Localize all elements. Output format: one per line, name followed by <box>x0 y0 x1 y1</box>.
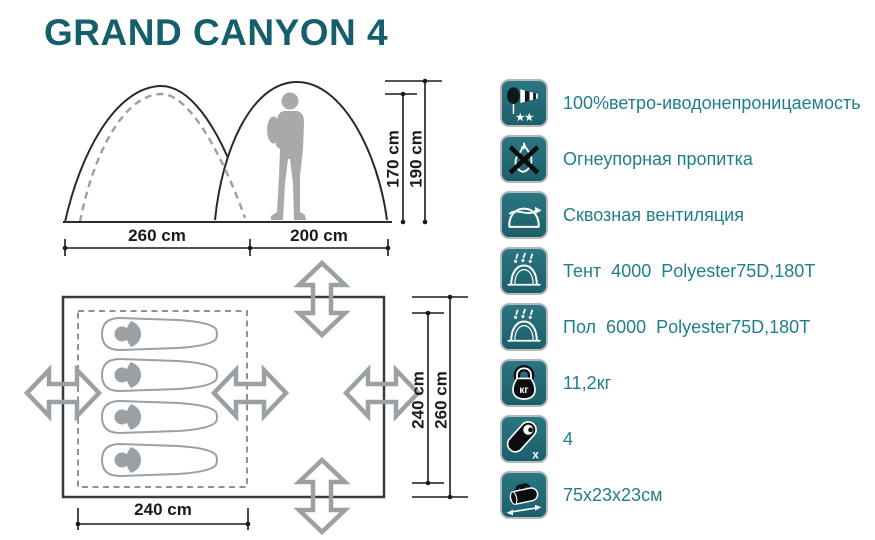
floor-waterproof-icon <box>502 305 546 349</box>
vent-arrow-icon <box>299 263 345 335</box>
dim-dot <box>401 220 406 225</box>
sleeping-bag <box>102 318 217 350</box>
tent-waterproof-icon <box>502 249 546 293</box>
tent-floorplan-diagram: 240 cm 260 cm 240 cm <box>18 254 488 540</box>
feature-icon-badge <box>500 191 548 239</box>
dim-dot <box>386 246 391 251</box>
sleeping-bag <box>102 401 217 433</box>
dim-dot <box>63 246 68 251</box>
feature-label: Пол 6000 Polyester75D,180T <box>563 317 810 338</box>
feature-label: Тент 4000 Polyester75D,180T <box>563 261 815 282</box>
dim-dot <box>426 481 431 486</box>
feature-list: ★★ 100%ветро-иводонепроницаемость Огнеуп… <box>500 79 861 519</box>
dim-dot <box>426 311 431 316</box>
dim-dot <box>448 295 453 300</box>
feature-row-ventilation: Сквозная вентиляция <box>500 191 861 239</box>
dim-dot <box>448 495 453 500</box>
feature-icon-badge <box>500 135 548 183</box>
feature-label: 100%ветро-иводонепроницаемость <box>563 93 861 114</box>
size-arrow <box>507 505 542 515</box>
feature-row-weight: кг 11,2кг <box>500 359 861 407</box>
capacity-icon: x <box>502 417 546 461</box>
svg-text:кг: кг <box>519 385 528 396</box>
packed-size-icon <box>502 473 546 517</box>
dim-dot <box>76 522 81 527</box>
ventilation-icon <box>502 193 546 237</box>
feature-icon-badge <box>500 303 548 351</box>
feature-row-windproof: ★★ 100%ветро-иводонепроницаемость <box>500 79 861 127</box>
feature-label: 75х23х23см <box>563 485 662 506</box>
svg-text:x: x <box>532 447 539 461</box>
dim-dot <box>401 92 406 97</box>
feature-row-capacity: x 4 <box>500 415 861 463</box>
feature-icon-badge <box>500 471 548 519</box>
sleeping-bag <box>102 359 217 391</box>
page-title: GRAND CANYON 4 <box>44 12 388 54</box>
elevation-height-outer-label: 190 cm <box>406 130 425 188</box>
svg-text:★★: ★★ <box>516 112 534 123</box>
elevation-width-left-label: 260 cm <box>128 226 186 245</box>
elevation-height-inner-label: 170 cm <box>383 130 402 188</box>
product-spec-sheet: GRAND CANYON 4 260 cm 200 cm <box>0 0 875 540</box>
floorplan-inner-depth-label: 240 cm <box>408 371 427 429</box>
weight-icon: кг <box>502 361 546 405</box>
dim-dot <box>246 522 251 527</box>
feature-icon-badge <box>500 247 548 295</box>
elevation-width-right-label: 200 cm <box>290 226 348 245</box>
feature-row-fly-rating: Тент 4000 Polyester75D,180T <box>500 247 861 295</box>
feature-icon-badge: x <box>500 415 548 463</box>
feature-row-fireproof: Огнеупорная пропитка <box>500 135 861 183</box>
door-arrow-icon <box>214 370 286 416</box>
feature-label: Огнеупорная пропитка <box>563 149 753 170</box>
feature-row-floor-rating: Пол 6000 Polyester75D,180T <box>500 303 861 351</box>
no-fire-icon <box>502 137 546 181</box>
tent-elevation-diagram: 260 cm 200 cm 170 cm 190 cm <box>40 64 452 262</box>
dim-dot <box>423 220 428 225</box>
feature-icon-badge: ★★ <box>500 79 548 127</box>
floorplan-bottom-width-label: 240 cm <box>134 500 192 519</box>
feature-row-packed-size: 75х23х23см <box>500 471 861 519</box>
windsock-icon: ★★ <box>502 81 546 125</box>
feature-label: 4 <box>563 429 573 450</box>
door-arrow-icon <box>346 370 418 416</box>
dim-dot <box>423 79 428 84</box>
dim-dot <box>248 246 253 251</box>
sleeping-bag <box>102 444 217 476</box>
floorplan-outer-depth-label: 260 cm <box>431 371 450 429</box>
feature-label: Сквозная вентиляция <box>563 205 744 226</box>
feature-label: 11,2кг <box>563 373 611 394</box>
feature-icon-badge: кг <box>500 359 548 407</box>
rear-dome-outline <box>65 86 233 222</box>
